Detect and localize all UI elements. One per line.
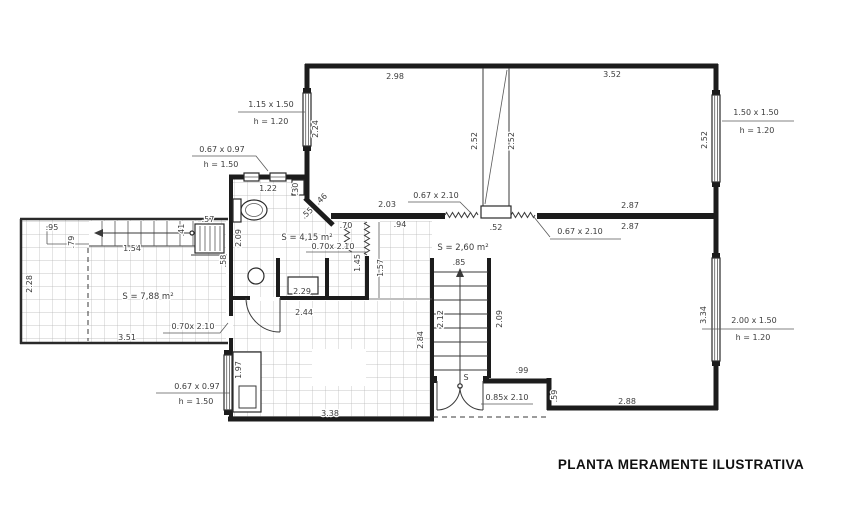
dim-bath-niche: .30 [291, 183, 300, 196]
area-label-stair-hall: S = 2,60 m² [437, 243, 488, 253]
window-spec-kitchen-size: 0.67 x 0.97 [174, 382, 219, 391]
window-spec-right-bedroom-sill: h = 1.20 [740, 126, 775, 135]
dim-radiator-width: .57 [202, 215, 215, 224]
entry-door-jamb-left [431, 376, 437, 383]
window-living-room [712, 253, 720, 366]
plan-title: PLANTA MERAMENTE ILUSTRATIVA [558, 457, 804, 472]
dim-terrace-stair: 1.54 [123, 244, 141, 253]
dim-hall-height: 1.57 [376, 259, 385, 277]
door-spec-hall-left: 0.67 x 2.10 [413, 191, 458, 200]
dim-bedroom2-width: 3.52 [603, 70, 621, 79]
dim-hall-top: 2.03 [378, 200, 396, 209]
dim-stair-width: .85 [453, 258, 466, 267]
door-spec-entry: 0.85x 2.10 [486, 393, 529, 402]
floor-plan-drawing: 2.98 2.24 1.15 x 1.50 h = 1.20 2.52 2.52… [0, 0, 856, 506]
dim-column-width: .52 [490, 223, 503, 232]
dim-entry-step: .99 [516, 366, 529, 375]
window-spec-living-room-size: 2.00 x 1.50 [731, 316, 776, 325]
dim-bedroom2-bottom-a: 2.87 [621, 201, 639, 210]
dim-bedroom2-height: 2.52 [700, 131, 709, 149]
dim-chamfer-a: .46 [314, 192, 329, 207]
door-spec-bathroom: 0.70x 2.10 [312, 242, 355, 251]
window-spec-kitchen-sill: h = 1.50 [179, 397, 214, 406]
dim-bath-door-width: .70 [340, 221, 353, 230]
dim-bedroom1-height: 2.24 [311, 120, 320, 138]
sink [248, 268, 264, 284]
window-spec-left-bedroom-sill: h = 1.20 [254, 117, 289, 126]
radiator [191, 224, 227, 255]
entry-door-swing-tag: S [463, 373, 468, 382]
dim-bath-width: 2.44 [295, 308, 313, 317]
window-right-bedroom [712, 90, 720, 187]
area-label-terrace: S = 7,88 m² [122, 292, 173, 302]
hall-floor [380, 221, 432, 298]
dim-shaft-right: 2.52 [507, 132, 516, 150]
dim-bedroom2-bottom-b: 2.87 [621, 222, 639, 231]
window-kitchen [224, 350, 232, 415]
window-spec-right-bedroom-size: 1.50 x 1.50 [733, 108, 778, 117]
dim-entry-side: .59 [550, 390, 559, 403]
dim-radiator-height: .58 [219, 255, 228, 268]
toilet [233, 199, 267, 222]
dim-living-bottom: 2.88 [618, 397, 636, 406]
dim-stair-right: 2.09 [495, 310, 504, 328]
floor-plan-page: 2.98 2.24 1.15 x 1.50 h = 1.20 2.52 2.52… [0, 0, 856, 506]
dim-kitchen-right: 2.84 [416, 331, 425, 349]
kitchen-blank-patch [312, 349, 366, 386]
door-spec-terrace: 0.70x 2.10 [172, 322, 215, 331]
dim-stair-left: 2.12 [436, 310, 445, 328]
door-spec-hall-right: 0.67 x 2.10 [557, 227, 602, 236]
dim-shaft-left: 2.52 [470, 132, 479, 150]
window-spec-living-room-sill: h = 1.20 [736, 333, 771, 342]
dim-terrace-bottom: 3.51 [118, 333, 136, 342]
dim-terrace-step: .79 [67, 236, 76, 249]
dim-bath-partition: 1.45 [353, 254, 362, 272]
kitchen-counter [233, 352, 261, 412]
dim-terrace-left: 2.28 [25, 275, 34, 293]
dim-bath-window-span: 1.22 [259, 184, 277, 193]
dim-counter-height: 1.97 [234, 361, 243, 379]
shaft-column [481, 206, 511, 218]
dim-radiator-step: .41 [177, 224, 186, 237]
dim-tub-span: 2.29 [293, 287, 311, 296]
dim-bedroom1-width: 2.98 [386, 72, 404, 81]
window-spec-bathroom-sill: h = 1.50 [204, 160, 239, 169]
dim-living-window: 3.34 [699, 306, 708, 324]
entry-door-jamb-right [483, 376, 489, 383]
dim-hall-width: .94 [394, 220, 407, 229]
dim-bath-height: 2.09 [234, 229, 243, 247]
window-spec-bathroom-size: 0.67 x 0.97 [199, 145, 244, 154]
dim-terrace-top: .95 [46, 223, 59, 232]
window-left-bedroom [303, 88, 311, 151]
window-spec-left-bedroom-size: 1.15 x 1.50 [248, 100, 293, 109]
dim-kitchen-bottom: 3.38 [321, 409, 339, 418]
